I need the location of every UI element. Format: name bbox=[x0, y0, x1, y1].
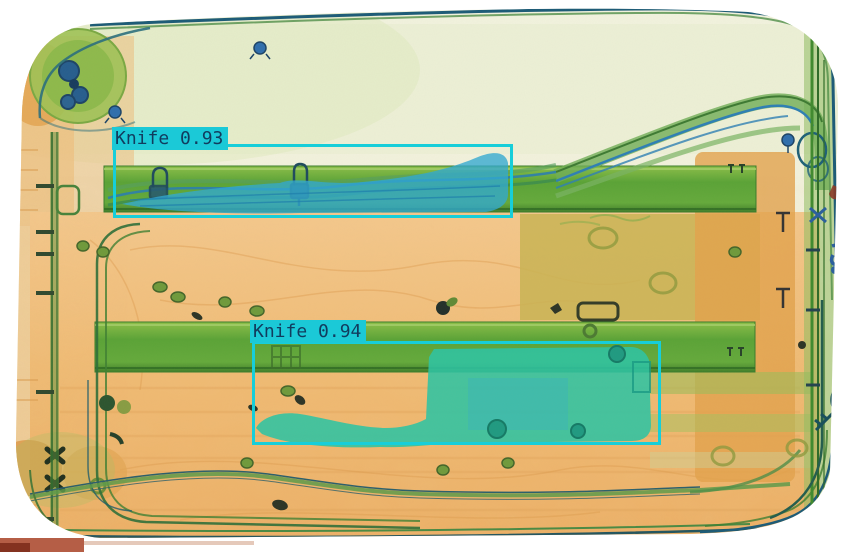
detection-bounding-box bbox=[113, 144, 513, 218]
detection-label: Knife 0.93 bbox=[112, 127, 228, 150]
xray-scan-viewport: Knife 0.93 Knife 0.94 bbox=[0, 0, 850, 552]
detection-bounding-box bbox=[252, 341, 661, 445]
detection-label: Knife 0.94 bbox=[250, 320, 366, 343]
detection-overlay: Knife 0.93 Knife 0.94 bbox=[0, 0, 850, 552]
